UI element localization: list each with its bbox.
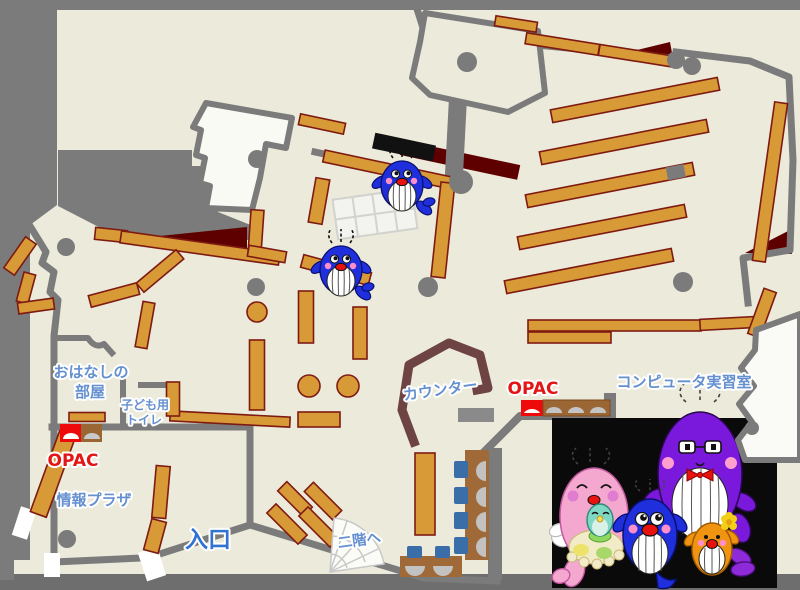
label-opac-left: OPAC (48, 451, 99, 471)
label-info-plaza: 情報プラザ (56, 491, 131, 509)
opac-station-left (60, 424, 102, 442)
baby-whale (587, 504, 613, 542)
library-floor-map: おはなしの 部屋 子ども用 トイレ OPAC 情報プラザ 入口 二階へ カウンタ… (0, 0, 800, 590)
label-story-room-line1: おはなしの (53, 363, 128, 381)
label-story-room-line2: 部屋 (75, 383, 105, 401)
label-kids-toilet-line2: トイレ (126, 413, 162, 427)
opac-station-center (521, 400, 610, 416)
label-computer-room: コンピュータ実習室 (616, 373, 751, 391)
label-kids-toilet-line1: 子ども用 (121, 398, 169, 412)
label-entrance: 入口 (185, 527, 231, 553)
label-opac-center: OPAC (508, 379, 559, 399)
